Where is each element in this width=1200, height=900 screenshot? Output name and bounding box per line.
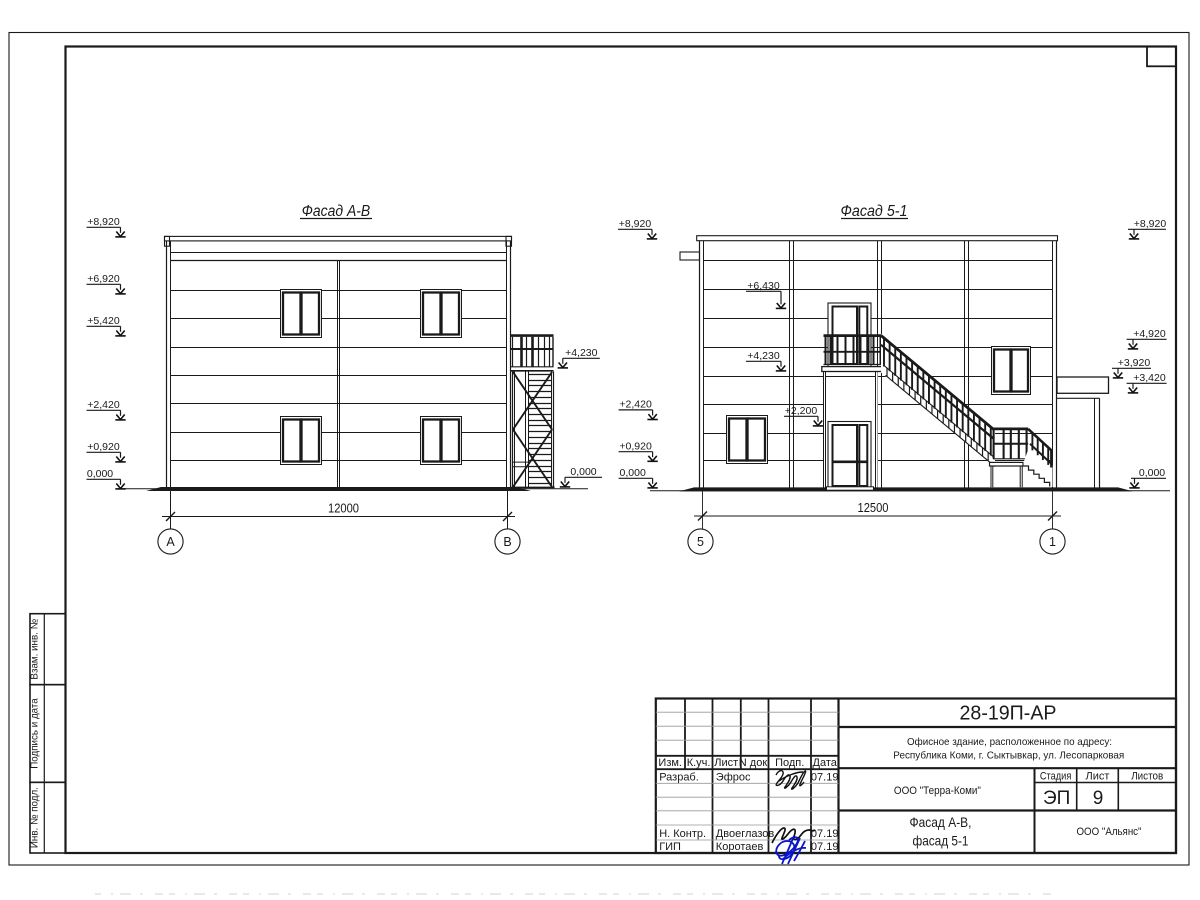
svg-text:Республика Коми, г. Сыктывкар,: Республика Коми, г. Сыктывкар, ул. Лесоп…	[893, 750, 1124, 762]
svg-text:Стадия: Стадия	[1040, 770, 1072, 782]
svg-text:Подп.: Подп.	[775, 757, 804, 769]
svg-text:1: 1	[1049, 535, 1056, 549]
svg-text:Н. Контр.: Н. Контр.	[659, 828, 706, 840]
svg-text:07.19: 07.19	[811, 771, 839, 783]
svg-text:+8,920: +8,920	[1134, 218, 1167, 230]
svg-text:+3,420: +3,420	[1133, 372, 1166, 384]
svg-text:Подпись и дата: Подпись и дата	[30, 698, 41, 769]
svg-text:0,000: 0,000	[570, 466, 596, 478]
svg-text:+8,920: +8,920	[87, 216, 120, 228]
svg-text:Лист: Лист	[714, 757, 738, 769]
svg-text:0,000: 0,000	[1139, 467, 1165, 479]
svg-text:07.19: 07.19	[811, 828, 839, 840]
svg-text:Коротаев: Коротаев	[716, 841, 764, 853]
svg-text:+4,230: +4,230	[565, 347, 598, 359]
svg-text:28-19П-АР: 28-19П-АР	[960, 703, 1057, 725]
svg-text:5: 5	[697, 535, 704, 549]
svg-text:Взам. инв. №: Взам. инв. №	[30, 619, 41, 680]
svg-text:Эфрос: Эфрос	[716, 771, 751, 783]
svg-text:Разраб.: Разраб.	[659, 771, 699, 783]
svg-text:+6,430: +6,430	[747, 280, 780, 292]
svg-text:Дата: Дата	[813, 757, 838, 769]
svg-text:07.19: 07.19	[811, 841, 839, 853]
svg-text:+2,420: +2,420	[619, 399, 652, 411]
svg-text:12500: 12500	[858, 500, 889, 515]
svg-text:ООО "Терра-Коми": ООО "Терра-Коми"	[894, 785, 981, 797]
svg-text:+4,920: +4,920	[1133, 328, 1166, 340]
svg-text:ООО "Альянс": ООО "Альянс"	[1077, 826, 1142, 838]
svg-text:Фасад 5-1: Фасад 5-1	[841, 203, 908, 220]
svg-text:+5,420: +5,420	[87, 315, 120, 327]
svg-text:+4,230: +4,230	[747, 350, 780, 362]
svg-text:+8,920: +8,920	[619, 218, 652, 230]
svg-text:Лист: Лист	[1086, 770, 1110, 782]
svg-text:N док.: N док.	[739, 757, 770, 769]
svg-text:В: В	[503, 535, 511, 549]
svg-text:ГИП: ГИП	[659, 841, 681, 853]
svg-text:9: 9	[1093, 788, 1104, 809]
svg-text:А: А	[166, 535, 175, 549]
svg-text:+2,200: +2,200	[785, 405, 818, 417]
svg-text:+6,920: +6,920	[87, 273, 120, 285]
svg-text:+3,920: +3,920	[1118, 357, 1151, 369]
svg-text:ЭП: ЭП	[1043, 788, 1070, 809]
svg-text:Изм.: Изм.	[658, 757, 682, 769]
svg-text:Офисное здание, расположенное: Офисное здание, расположенное по адресу:	[907, 736, 1112, 748]
svg-text:К.уч.: К.уч.	[687, 757, 711, 769]
svg-text:Фасад А-В: Фасад А-В	[302, 203, 371, 220]
svg-text:+0,920: +0,920	[619, 441, 652, 453]
svg-text:0,000: 0,000	[620, 467, 646, 479]
svg-text:Фасад А-В,: Фасад А-В,	[910, 815, 972, 830]
svg-text:Двоеглазов: Двоеглазов	[716, 828, 775, 840]
svg-text:+0,920: +0,920	[87, 441, 120, 453]
svg-text:Листов: Листов	[1131, 770, 1163, 782]
svg-text:фасад 5-1: фасад 5-1	[913, 834, 969, 849]
svg-text:0,000: 0,000	[87, 468, 113, 480]
svg-text:12000: 12000	[328, 500, 359, 515]
svg-text:+2,420: +2,420	[87, 399, 120, 411]
svg-text:Инв. № подл.: Инв. № подл.	[30, 787, 41, 848]
